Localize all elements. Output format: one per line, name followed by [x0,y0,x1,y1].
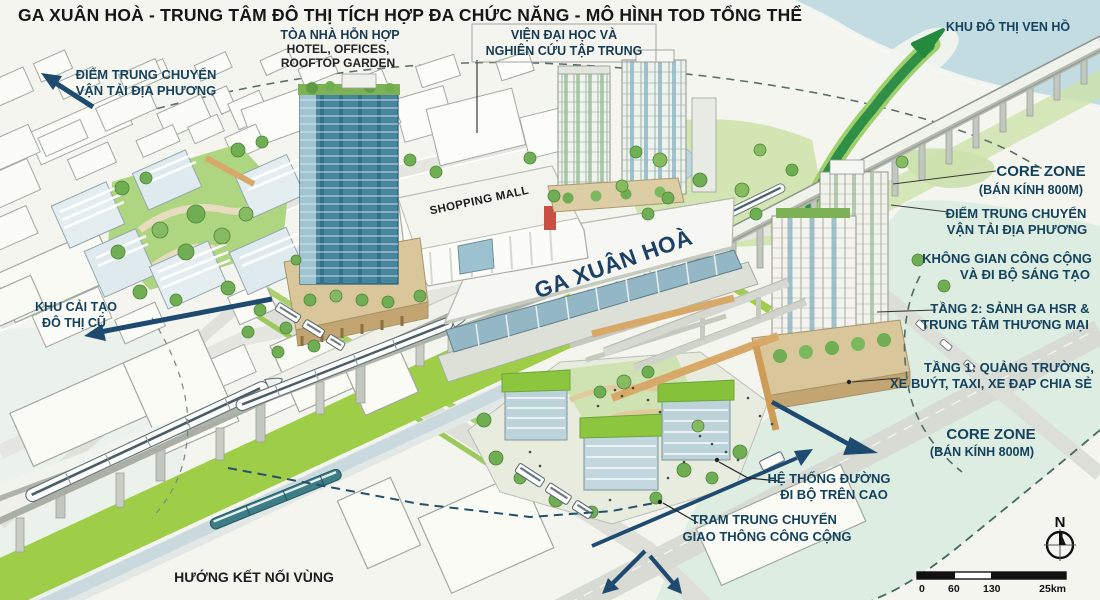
svg-text:CORE ZONE: CORE ZONE [996,163,1085,180]
svg-text:VẬN TẢI ĐỊA PHƯƠNG: VẬN TẢI ĐỊA PHƯƠNG [76,83,217,98]
svg-text:130: 130 [983,583,1001,595]
svg-text:TRUNG TÂM THƯƠNG MẠI: TRUNG TÂM THƯƠNG MẠI [921,317,1089,332]
svg-text:VIỆN ĐẠI HỌC VÀ: VIỆN ĐẠI HỌC VÀ [511,27,617,42]
svg-text:TRAM TRUNG CHUYỂN: TRAM TRUNG CHUYỂN [691,512,837,527]
svg-text:KHÔNG GIAN CÔNG CỘNG: KHÔNG GIAN CÔNG CỘNG [922,251,1092,266]
svg-text:(BÁN KÍNH 800M): (BÁN KÍNH 800M) [979,182,1083,197]
svg-text:GIAO THÔNG CÔNG CỘNG: GIAO THÔNG CÔNG CỘNG [683,529,852,544]
svg-text:KHU CẢI TẠO: KHU CẢI TẠO [35,299,117,314]
svg-text:CORE ZONE: CORE ZONE [946,426,1035,443]
svg-text:ĐIỂM TRUNG CHUYỂN: ĐIỂM TRUNG CHUYỂN [946,206,1087,221]
svg-text:N: N [1055,514,1066,531]
svg-text:(BÁN KÍNH 800M): (BÁN KÍNH 800M) [930,444,1034,459]
svg-text:HƯỚNG KẾT NỐI VÙNG: HƯỚNG KẾT NỐI VÙNG [174,568,334,585]
svg-text:GA XUÂN HOÀ - TRUNG TÂM ĐÔ THỊ: GA XUÂN HOÀ - TRUNG TÂM ĐÔ THỊ TÍCH HỢP … [18,4,802,25]
svg-text:ĐI BỘ TRÊN CAO: ĐI BỘ TRÊN CAO [780,487,888,502]
svg-text:TẦNG 1: QUẢNG TRƯỜNG,: TẦNG 1: QUẢNG TRƯỜNG, [924,360,1094,375]
svg-text:VÀ ĐI BỘ SÁNG TẠO: VÀ ĐI BỘ SÁNG TẠO [960,267,1090,282]
svg-text:25km: 25km [1039,583,1066,595]
svg-text:KHU ĐÔ THỊ VEN HỒ: KHU ĐÔ THỊ VEN HỒ [946,19,1071,34]
svg-text:ROOFTOP GARDEN: ROOFTOP GARDEN [281,56,395,70]
svg-text:NGHIÊN CỨU TẬP TRUNG: NGHIÊN CỨU TẬP TRUNG [486,43,643,58]
svg-text:60: 60 [948,583,960,595]
svg-text:ĐÔ THỊ CŨ: ĐÔ THỊ CŨ [42,315,106,330]
svg-text:ĐIỂM TRUNG CHUYỂN: ĐIỂM TRUNG CHUYỂN [76,67,217,82]
svg-text:HOTEL, OFFICES,: HOTEL, OFFICES, [287,42,390,56]
svg-text:XE BUÝT, TAXI, XE ĐẠP CHIA SẺ: XE BUÝT, TAXI, XE ĐẠP CHIA SẺ [890,376,1092,391]
svg-text:HỆ THỐNG ĐƯỜNG: HỆ THỐNG ĐƯỜNG [768,471,891,486]
svg-text:TẦNG 2: SẢNH GA HSR &: TẦNG 2: SẢNH GA HSR & [930,301,1089,316]
svg-text:VẬN TẢI ĐỊA PHƯƠNG: VẬN TẢI ĐỊA PHƯƠNG [947,222,1088,237]
svg-text:TÒA NHÀ HỖN HỢP: TÒA NHÀ HỖN HỢP [280,27,399,42]
svg-text:0: 0 [919,583,925,595]
